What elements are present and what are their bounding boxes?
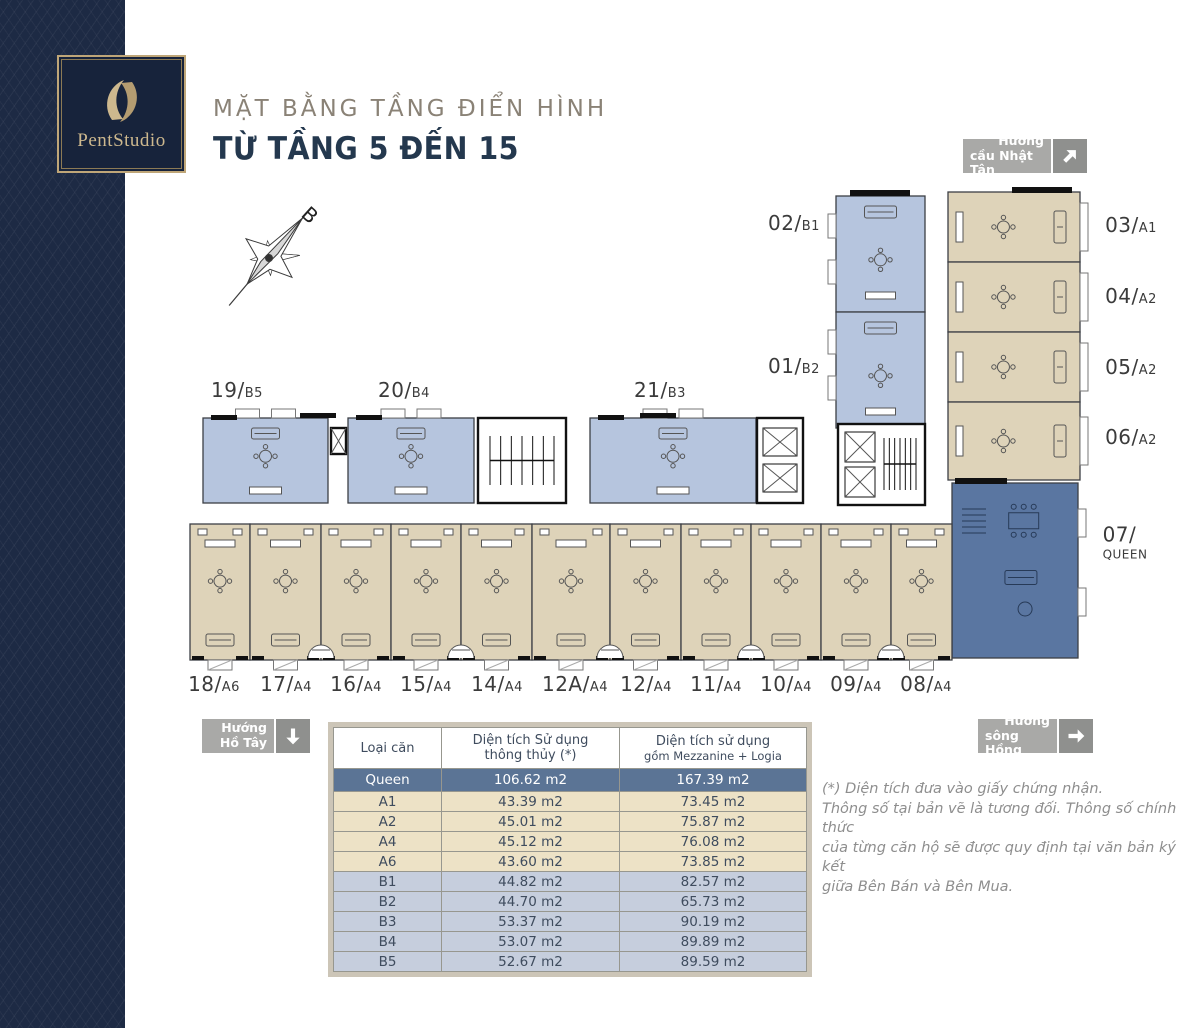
unit-type-cell: B2 [334, 892, 442, 912]
gross-area-cell: 76.08 m2 [620, 832, 807, 852]
unit-16A4 [321, 524, 391, 670]
table-row: B453.07 m289.89 m2 [334, 932, 807, 952]
gross-area-cell: 167.39 m2 [620, 769, 807, 792]
net-area-cell: 53.07 m2 [442, 932, 620, 952]
net-area-cell: 52.67 m2 [442, 952, 620, 972]
gross-area-cell: 73.45 m2 [620, 792, 807, 812]
unit-17A4 [250, 524, 321, 670]
unit-type-cell: A2 [334, 812, 442, 832]
table-row: B552.67 m289.59 m2 [334, 952, 807, 972]
unit-20B4 [348, 409, 474, 503]
gross-area-cell: 89.89 m2 [620, 932, 807, 952]
page: PentStudio MẶT BẰNG TẦNG ĐIỂN HÌNH TỪ TẦ… [0, 0, 1200, 1028]
table-header-row: Loại căn Diện tích Sử dụng thông thủy (*… [334, 728, 807, 769]
footnote-line: của từng căn hộ sẽ được quy định tại văn… [822, 839, 1192, 878]
unit-type-cell: B3 [334, 912, 442, 932]
unit-type-cell: B4 [334, 932, 442, 952]
unit-11A4 [681, 524, 751, 670]
unit-14A4 [461, 524, 532, 670]
net-area-cell: 44.82 m2 [442, 872, 620, 892]
core-shaft [331, 428, 346, 454]
footnote-line: (*) Diện tích đưa vào giấy chứng nhận. [822, 780, 1192, 800]
unit-type-cell: A1 [334, 792, 442, 812]
core-lifts [757, 418, 803, 503]
table-row: B144.82 m282.57 m2 [334, 872, 807, 892]
wall-bar [640, 413, 676, 418]
unit-05A2 [948, 332, 1088, 402]
unit-01B2 [828, 312, 925, 428]
wall-bar [1012, 187, 1072, 193]
footnote-line: Thông số tại bản vẽ là tương đối. Thông … [822, 800, 1192, 839]
unit-19B5 [203, 409, 328, 503]
table-row: B353.37 m290.19 m2 [334, 912, 807, 932]
wall-bar [300, 413, 336, 418]
footnote: (*) Diện tích đưa vào giấy chứng nhận.Th… [822, 780, 1192, 897]
unit-12AA4 [532, 524, 610, 670]
gross-area-cell: 65.73 m2 [620, 892, 807, 912]
table-row: Queen106.62 m2167.39 m2 [334, 769, 807, 792]
wall-bar [955, 478, 1007, 484]
unit-10A4 [751, 524, 821, 670]
table-row: A643.60 m273.85 m2 [334, 852, 807, 872]
header-net-area: Diện tích Sử dụng thông thủy (*) [442, 728, 620, 769]
unit-06A2 [948, 402, 1088, 480]
unit-type-cell: A4 [334, 832, 442, 852]
unit-04A2 [948, 262, 1088, 332]
unit-07QUEEN [952, 483, 1086, 658]
net-area-cell: 53.37 m2 [442, 912, 620, 932]
gross-area-cell: 89.59 m2 [620, 952, 807, 972]
unit-type-cell: B5 [334, 952, 442, 972]
area-table-frame: Loại căn Diện tích Sử dụng thông thủy (*… [328, 722, 812, 977]
unit-18A6 [190, 524, 250, 670]
footnote-line: giữa Bên Bán và Bên Mua. [822, 878, 1192, 898]
net-area-cell: 45.12 m2 [442, 832, 620, 852]
unit-type-cell: A6 [334, 852, 442, 872]
net-area-cell: 43.60 m2 [442, 852, 620, 872]
gross-area-cell: 90.19 m2 [620, 912, 807, 932]
net-area-cell: 106.62 m2 [442, 769, 620, 792]
unit-15A4 [391, 524, 461, 670]
net-area-cell: 45.01 m2 [442, 812, 620, 832]
unit-12A4 [610, 524, 681, 670]
net-area-cell: 43.39 m2 [442, 792, 620, 812]
unit-02B1 [828, 196, 925, 312]
table-row: A445.12 m276.08 m2 [334, 832, 807, 852]
area-table: Loại căn Diện tích Sử dụng thông thủy (*… [333, 727, 807, 972]
unit-type-cell: B1 [334, 872, 442, 892]
table-row: B244.70 m265.73 m2 [334, 892, 807, 912]
wall-bar [850, 190, 910, 196]
net-area-cell: 44.70 m2 [442, 892, 620, 912]
unit-09A4 [821, 524, 891, 670]
unit-type-cell: Queen [334, 769, 442, 792]
table-row: A245.01 m275.87 m2 [334, 812, 807, 832]
core-stair [478, 418, 566, 503]
unit-21B3 [590, 409, 756, 503]
unit-03A1 [948, 192, 1088, 262]
gross-area-cell: 73.85 m2 [620, 852, 807, 872]
header-gross-area: Diện tích sử dụng gồm Mezzanine + Logia [620, 728, 807, 769]
header-unit-type: Loại căn [334, 728, 442, 769]
gross-area-cell: 82.57 m2 [620, 872, 807, 892]
core-corelifts [838, 424, 925, 505]
table-row: A143.39 m273.45 m2 [334, 792, 807, 812]
gross-area-cell: 75.87 m2 [620, 812, 807, 832]
